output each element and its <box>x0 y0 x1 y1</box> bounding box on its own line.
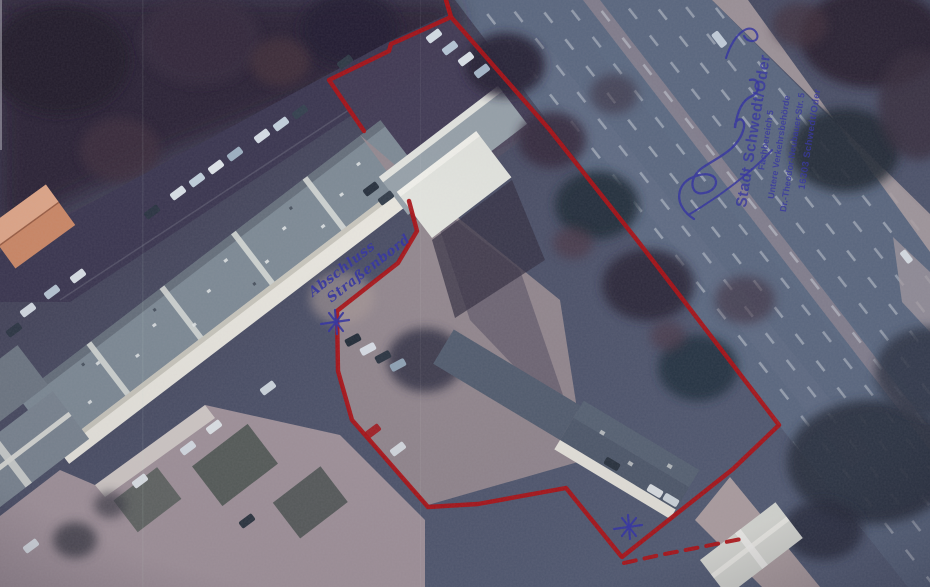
photo-grain <box>0 0 930 587</box>
scanned-aerial-site-plan: Abschluss Straßenbord Stadt Schwedt/Oder… <box>0 0 930 587</box>
